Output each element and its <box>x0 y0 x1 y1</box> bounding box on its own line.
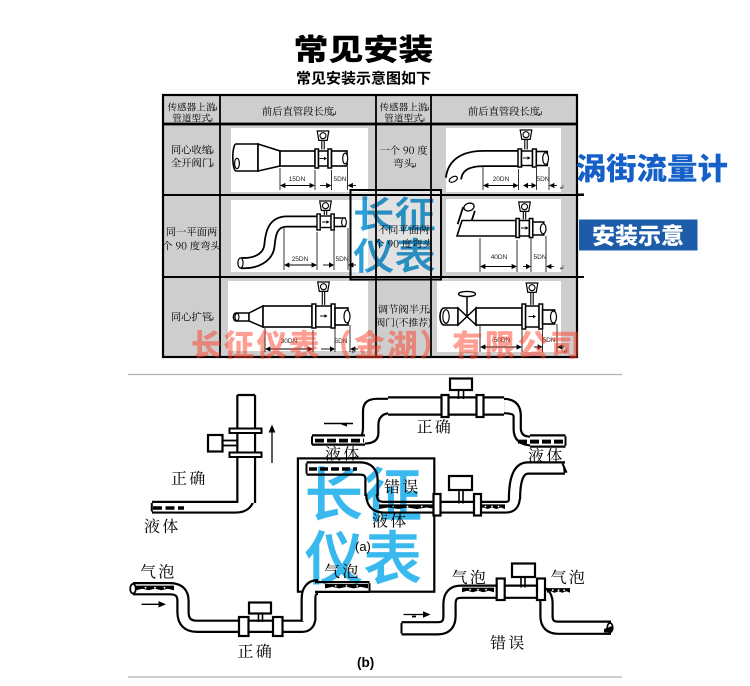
svg-text:15DN: 15DN <box>289 176 306 183</box>
svg-text:25DN: 25DN <box>292 256 309 263</box>
svg-text:5DN: 5DN <box>335 256 348 263</box>
svg-text:(b): (b) <box>357 655 374 670</box>
svg-text:40DN: 40DN <box>491 254 508 261</box>
svg-text:5DN: 5DN <box>333 176 346 183</box>
svg-text:20DN: 20DN <box>493 176 510 183</box>
svg-text:5DN: 5DN <box>533 254 546 261</box>
svg-text:5DN: 5DN <box>536 176 549 183</box>
